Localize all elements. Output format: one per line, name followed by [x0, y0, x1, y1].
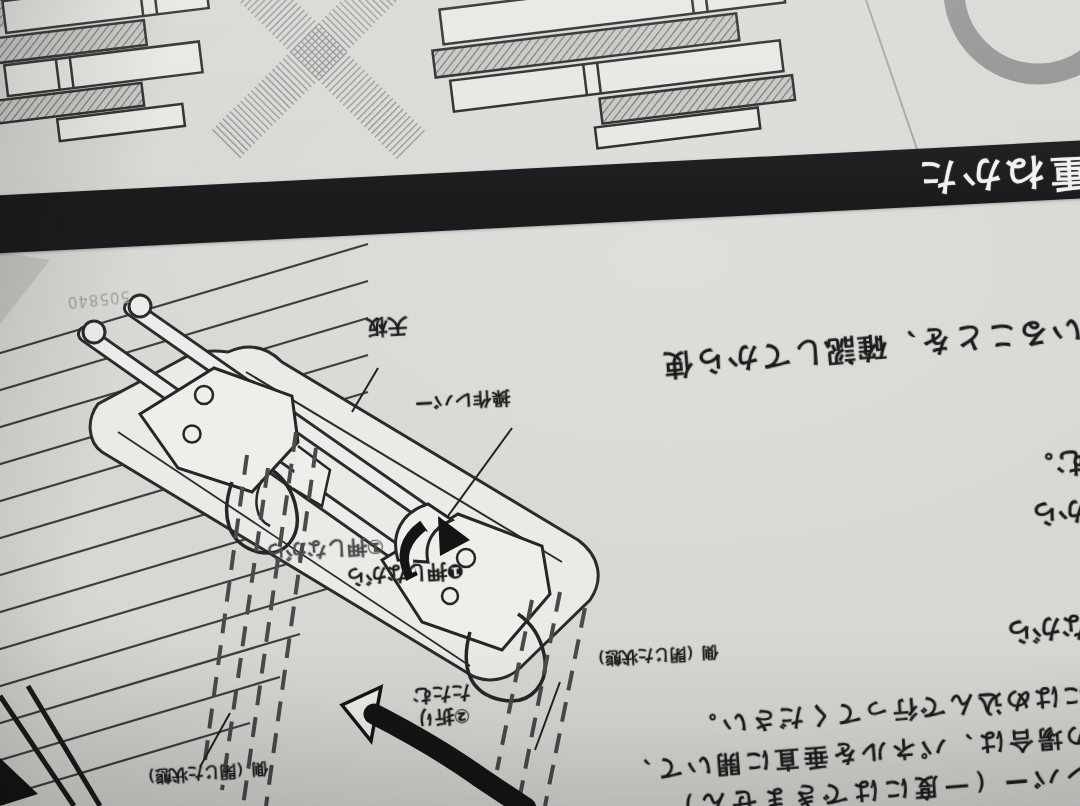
page-corner-shadow	[0, 252, 50, 324]
page-fold-line	[866, 0, 918, 152]
ok-circle-icon	[954, 0, 1080, 74]
line-ending-fragment-kara: から	[1005, 497, 1080, 532]
label-operation-lever: 操作レバー	[406, 388, 511, 413]
line-ending-fragment-mu: む。	[1005, 447, 1080, 483]
board-stack-right	[427, 0, 799, 167]
line-ending-fragment-nagara: ながら	[981, 613, 1080, 650]
prohibition-cross-icon	[211, 0, 426, 159]
photographed-instruction-sheet: の重ねかた 505840 いることを、確認してから使 む。 から ながら にはめ…	[0, 0, 1080, 806]
instruction-line-art	[0, 0, 1080, 806]
label-top-panel: 天板	[343, 313, 408, 339]
board-stack-left	[0, 0, 223, 148]
label-step2-fold: ②折り たたむ	[387, 680, 498, 731]
section-banner-title: の重ねかた	[911, 144, 1080, 205]
